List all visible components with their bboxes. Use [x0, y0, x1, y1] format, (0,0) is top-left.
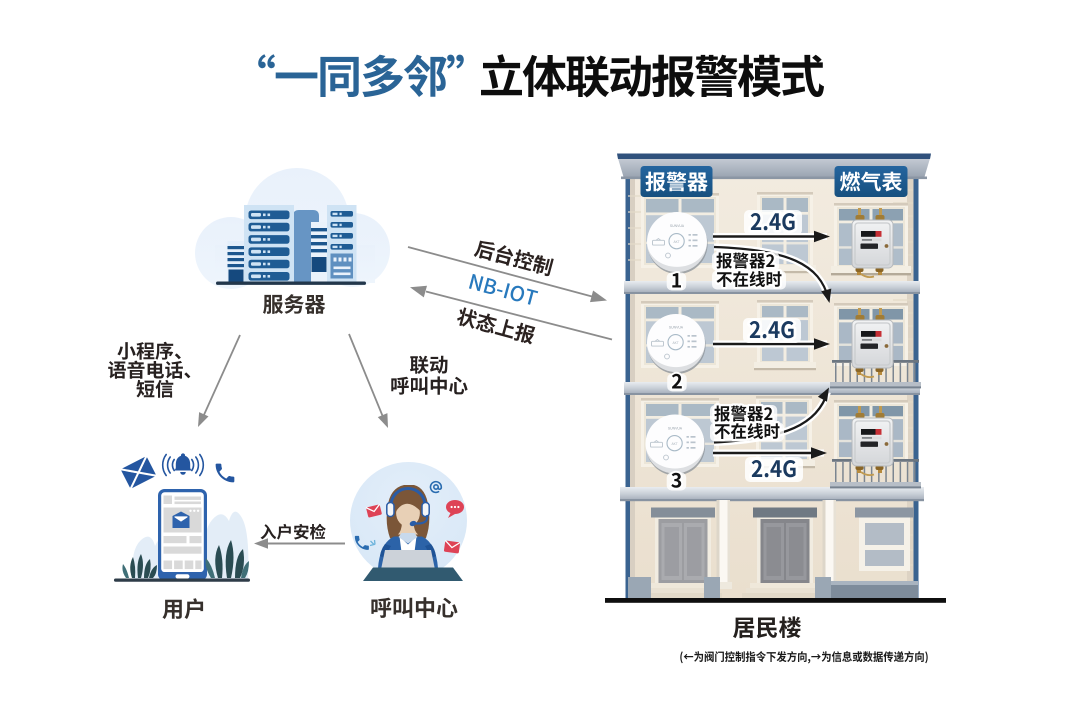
svg-text:AKT: AKT	[672, 341, 678, 345]
svg-text:AKT: AKT	[671, 442, 677, 446]
svg-text:SUNVUA: SUNVUA	[670, 224, 685, 228]
svg-text:SUNVUA: SUNVUA	[669, 326, 684, 330]
svg-text:SUNVUA: SUNVUA	[668, 426, 683, 430]
svg-text:AKT: AKT	[673, 240, 679, 244]
